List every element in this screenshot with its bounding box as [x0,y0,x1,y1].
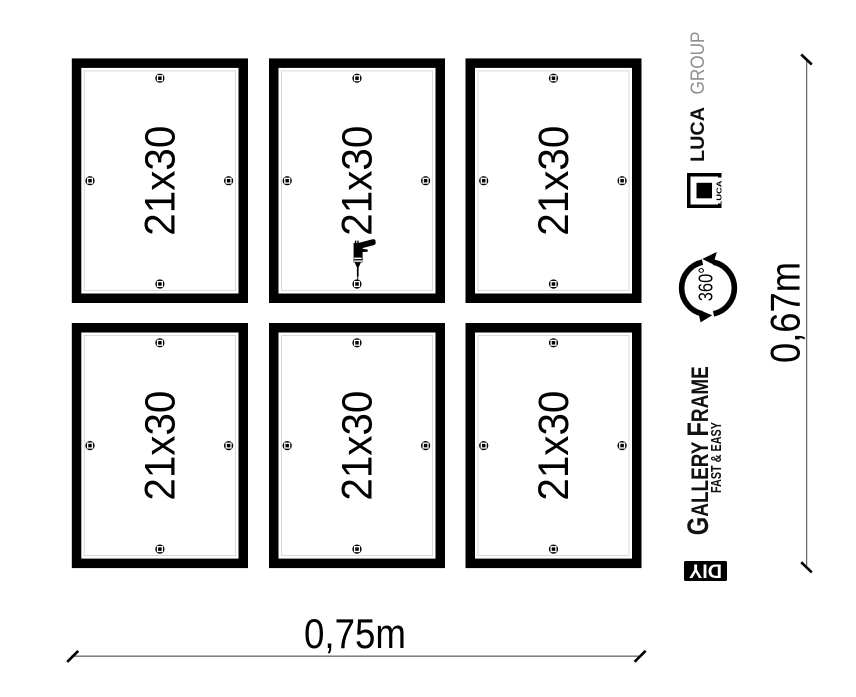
svg-text:21x30: 21x30 [334,391,382,501]
svg-text:GROUP: GROUP [688,32,709,95]
svg-text:21x30: 21x30 [334,126,382,236]
svg-text:LUCA: LUCA [688,107,709,162]
svg-text:21x30: 21x30 [136,126,184,236]
svg-text:21x30: 21x30 [136,391,184,501]
svg-text:FAST & EASY: FAST & EASY [709,422,725,493]
svg-text:21x30: 21x30 [530,126,578,236]
svg-text:21x30: 21x30 [530,391,578,501]
svg-text:DIY: DIY [689,560,722,581]
svg-text:0,75m: 0,75m [304,610,406,657]
svg-text:360°: 360° [696,267,718,301]
svg-text:0,67m: 0,67m [762,262,809,363]
svg-text:LUCA: LUCA [714,180,723,207]
